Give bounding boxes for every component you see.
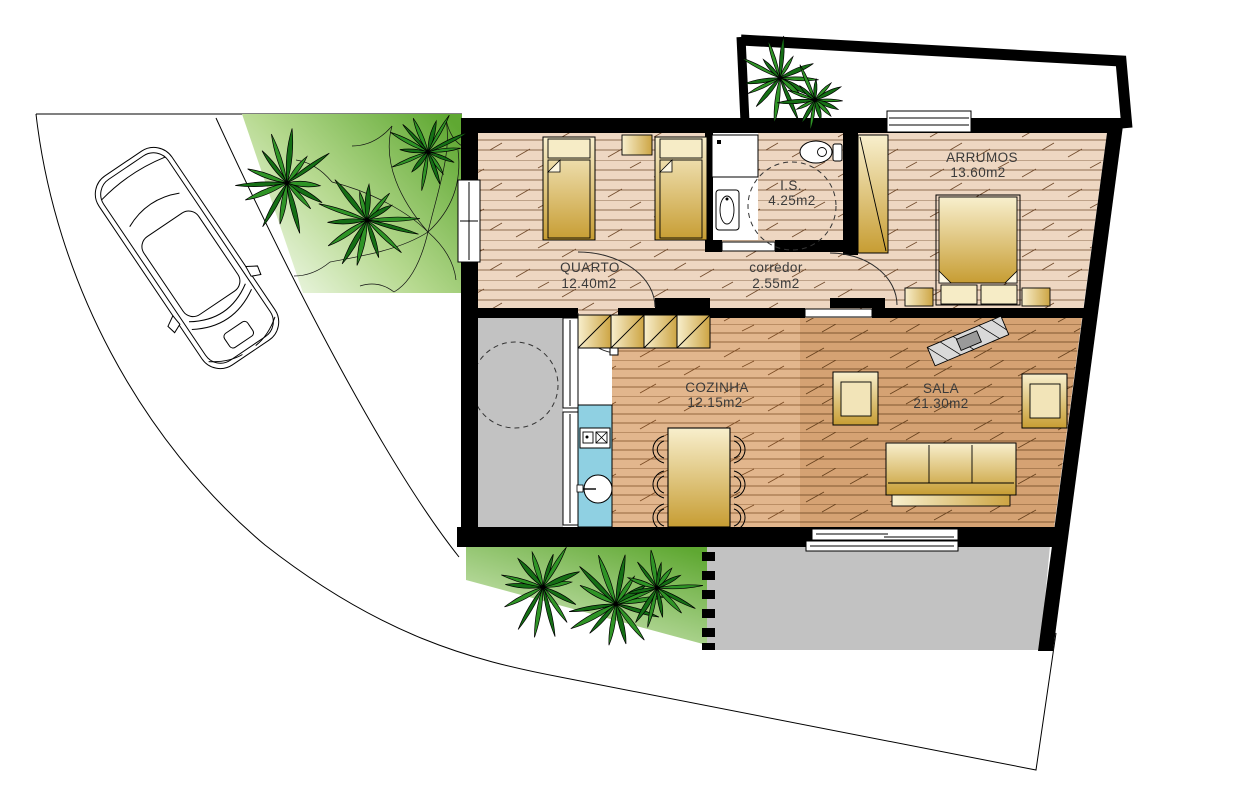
room-area-corredor: 2.55m2 <box>752 276 799 291</box>
single-bed-2 <box>655 137 707 240</box>
wall-is-stub-left <box>705 240 722 252</box>
room-label-arrumos: ARRUMOS <box>946 150 1018 165</box>
terrace <box>702 546 1050 650</box>
window-quarto-left <box>458 180 480 262</box>
terrace-slab <box>707 546 1050 650</box>
wardrobe <box>858 135 888 253</box>
dining-table <box>668 428 730 527</box>
tall-units <box>563 318 578 525</box>
stove <box>580 428 610 448</box>
wall-is-stub-right <box>775 240 845 252</box>
room-area-cozinha: 12.15m2 <box>687 395 742 410</box>
single-bed-1 <box>543 137 595 240</box>
armchair-left <box>833 372 878 425</box>
wall-mid-seg3 <box>872 308 1085 318</box>
room-label-cozinha: COZINHA <box>685 380 749 395</box>
bathroom-door-leaf <box>722 242 775 251</box>
nightstand-left <box>905 288 933 306</box>
pillow <box>941 285 977 304</box>
room-label-quarto: QUARTO <box>560 260 620 275</box>
washbasin <box>716 190 739 230</box>
pillow <box>660 139 702 158</box>
floor-plan-page: QUARTO 12.40m2 I.S. 4.25m2 corredor 2.55… <box>0 0 1257 793</box>
wall-is-arrumos <box>843 133 858 255</box>
room-label-is: I.S. <box>780 178 802 193</box>
room-area-quarto: 12.40m2 <box>561 276 616 291</box>
room-label-corredor: corredor <box>749 260 803 275</box>
wall-mid-seg1 <box>461 308 578 318</box>
nightstand-right <box>1022 288 1050 306</box>
sliding-door-sala <box>806 529 958 551</box>
kitchen-counter <box>578 405 612 527</box>
room-area-sala: 21.30m2 <box>913 396 968 411</box>
wall-cabinets <box>578 315 710 348</box>
window-arrumos-top <box>887 111 971 132</box>
floor-plan-svg: QUARTO 12.40m2 I.S. 4.25m2 corredor 2.55… <box>0 0 1257 793</box>
toilet <box>800 141 842 163</box>
wall-stub-arrumos-door <box>830 298 885 308</box>
pillow <box>981 285 1017 304</box>
bedside-table <box>622 135 652 155</box>
wall-stub-quarto-door <box>655 298 710 308</box>
wall-top <box>461 118 1116 133</box>
room-area-is: 4.25m2 <box>768 193 815 208</box>
shower-drain <box>717 140 721 144</box>
courtyard-wall-left <box>741 37 745 122</box>
room-area-arrumos: 13.60m2 <box>950 165 1005 180</box>
sofa <box>886 443 1016 506</box>
pillow <box>548 139 590 158</box>
wall-bottom <box>457 527 1057 547</box>
room-label-sala: SALA <box>923 381 959 396</box>
sala-door-leaf <box>805 309 872 317</box>
armchair-right <box>1022 374 1067 428</box>
